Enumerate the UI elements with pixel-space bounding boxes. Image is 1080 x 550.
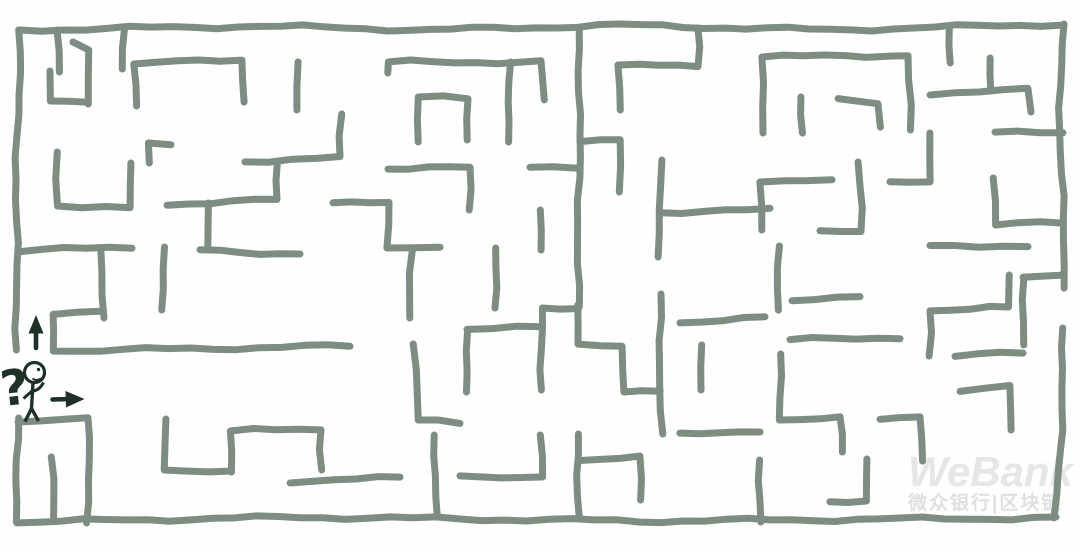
up-arrow-icon [29, 315, 44, 348]
maze-wall [297, 62, 298, 110]
maze-wall [530, 167, 578, 168]
maze-wall [660, 208, 770, 213]
maze-wall [388, 60, 545, 100]
maze-wall [466, 330, 467, 392]
maze-wall [1023, 275, 1063, 277]
maze-wall [434, 435, 438, 517]
maze-wall [20, 24, 1062, 31]
maze-wall [17, 516, 1056, 523]
maze-wall [930, 88, 1031, 112]
maze-wall [164, 419, 230, 472]
maze-wall [467, 326, 542, 329]
maze-wall [838, 99, 880, 128]
maze-wall [680, 432, 760, 434]
maze-wall [680, 317, 765, 323]
maze-wall [73, 42, 89, 104]
maze-wall [658, 160, 662, 257]
maze-wall [57, 30, 59, 72]
maze-wall [929, 275, 1009, 356]
maze-wall [701, 345, 702, 390]
maze-wall [949, 28, 950, 63]
maze-wall [995, 131, 1063, 133]
maze-wall [801, 97, 803, 133]
maze-wall [50, 71, 86, 102]
maze-wall [208, 203, 209, 247]
maze-wall [880, 417, 923, 461]
maze-wall [890, 133, 930, 182]
maze-wall [245, 114, 342, 162]
maze-wall [777, 246, 779, 310]
maze-wall [540, 210, 541, 250]
maze-wall [460, 435, 543, 478]
maze-wall [508, 62, 510, 142]
maze-wall [790, 338, 900, 340]
maze-wall [162, 247, 165, 310]
right-arrow-icon [53, 391, 85, 408]
maze-wall [993, 178, 1063, 225]
figure-eye [37, 368, 40, 371]
maze-wall [618, 28, 700, 110]
maze-wall [830, 459, 867, 503]
maze-wall [540, 308, 578, 390]
maze-wall [148, 143, 171, 163]
maze-wall [1022, 277, 1024, 345]
maze-wall [758, 460, 761, 522]
maze-wall [15, 30, 21, 350]
maze-wall [333, 202, 440, 248]
maze-wall [779, 354, 842, 452]
maze-wall [290, 477, 400, 483]
maze-wall [230, 429, 321, 473]
maze-wall [580, 140, 620, 142]
maze-wall [955, 352, 1023, 356]
maze-wall [930, 246, 1028, 248]
maze-wall [578, 305, 660, 392]
maze-wall [417, 96, 468, 142]
maze-wall [51, 457, 54, 521]
maze-wall [792, 297, 860, 301]
maze-illustration: WeBank 微众银行|区块链 ? [0, 0, 1080, 550]
maze-wall [410, 250, 413, 318]
maze-wall [1054, 328, 1063, 518]
maze-wall [53, 311, 350, 351]
maze-wall [659, 294, 663, 434]
maze-wall [820, 162, 862, 232]
maze-wall [56, 152, 131, 208]
maze-wall [413, 344, 460, 423]
maze-wall [580, 456, 642, 500]
maze-walls [15, 24, 1064, 523]
maze-wall [1059, 24, 1065, 288]
maze-wall [990, 58, 991, 91]
maze-wall [101, 249, 104, 318]
maze-wall [619, 140, 620, 192]
figure-body [32, 383, 34, 409]
maze-wall [16, 418, 19, 522]
maze-wall [167, 161, 278, 205]
maze-wall [134, 60, 244, 106]
maze-wall [495, 248, 497, 308]
maze-wall [18, 247, 132, 252]
maze-wall [960, 386, 1011, 431]
maze-wall [577, 434, 579, 516]
maze-wall [122, 28, 124, 69]
maze-wall [388, 167, 471, 210]
maze-wall [200, 250, 300, 255]
maze-canvas: ? [0, 0, 1080, 550]
figure-mouth [33, 379, 42, 381]
maze-wall [762, 55, 911, 133]
